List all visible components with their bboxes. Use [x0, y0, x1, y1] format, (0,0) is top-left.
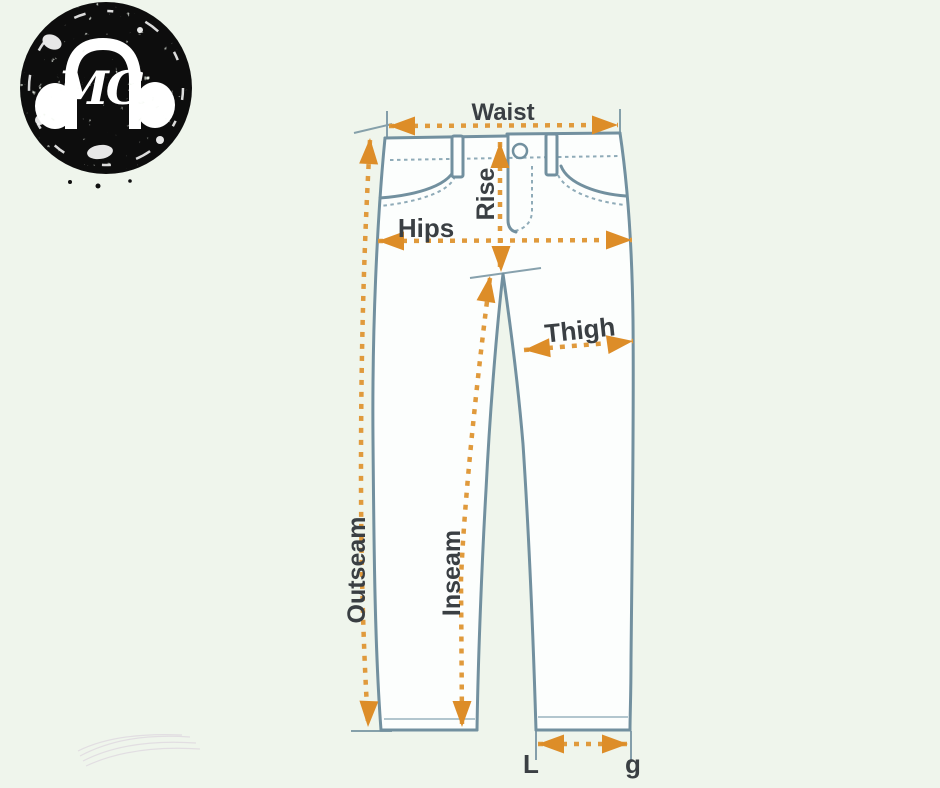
waist-top-edge-right — [507, 133, 620, 134]
logo-monogram: MG — [56, 61, 144, 115]
waist-label: Waist — [471, 99, 534, 126]
outseam-label: Outseam — [343, 517, 371, 624]
belt-loop-right — [546, 134, 557, 175]
hips-label: Hips — [398, 213, 454, 243]
waist-button — [513, 144, 527, 158]
diagram-svg: Waist Rise Hips Thigh Outseam Inseam L g… — [0, 0, 940, 788]
waist-top-edge-left — [385, 136, 507, 138]
rise-label: Rise — [472, 168, 500, 221]
belt-loop-left — [452, 136, 463, 177]
inseam-label: Inseam — [438, 530, 466, 616]
jeans-measurement-diagram: Waist Rise Hips Thigh Outseam Inseam L g… — [0, 0, 940, 788]
brand-logo: MG — [20, 2, 192, 174]
leg-opening-label-end: g — [625, 749, 641, 779]
leg-opening-label-start: L — [523, 749, 539, 779]
